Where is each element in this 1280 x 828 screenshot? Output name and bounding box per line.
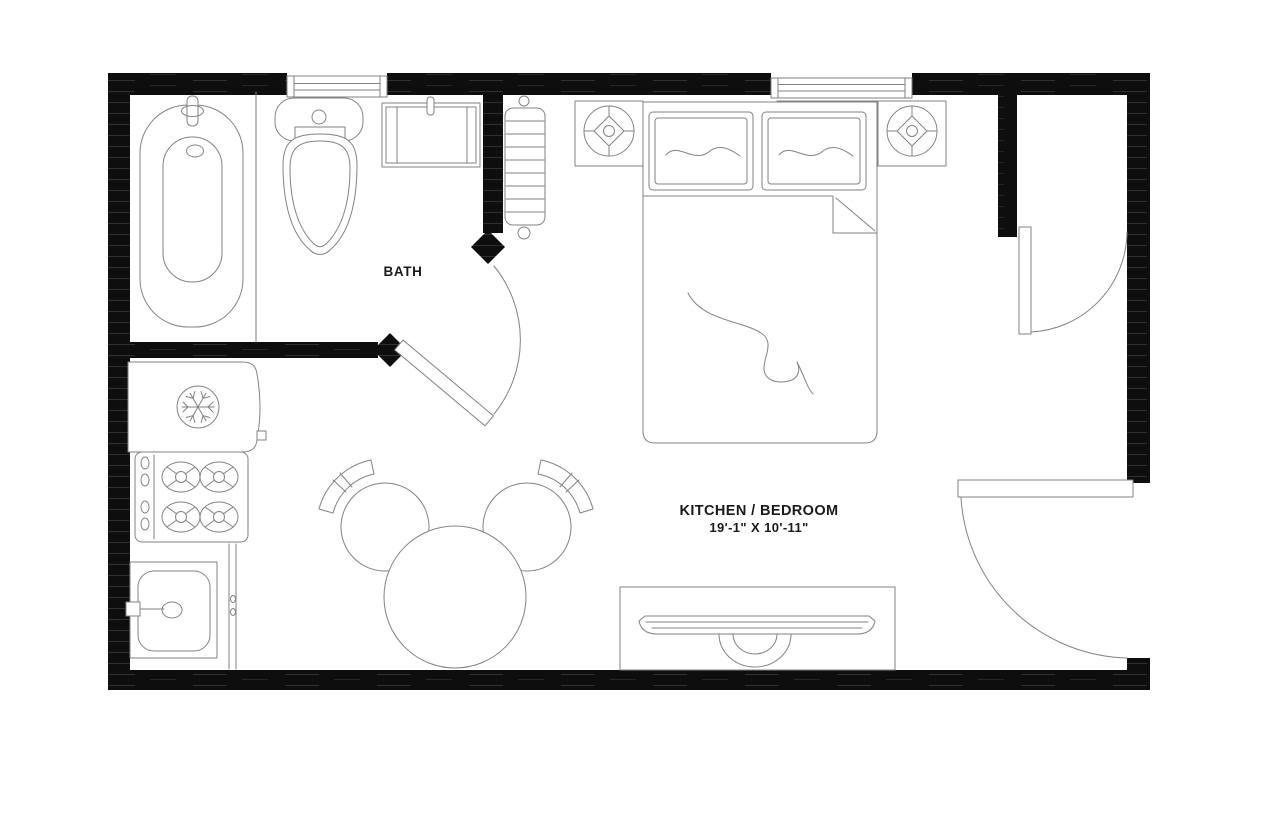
exterior-wall-left — [108, 73, 130, 690]
closet-door-leaf — [1019, 227, 1031, 334]
floor-plan-svg: BATH — [0, 0, 1280, 828]
bath-room-label: BATH — [384, 264, 423, 279]
toilet-bowl — [283, 134, 357, 255]
closet-partition-wall — [998, 95, 1017, 237]
exterior-wall-right-upper — [1127, 73, 1150, 483]
exterior-wall-right-lower — [1127, 658, 1150, 690]
tub-faucet-icon — [187, 96, 198, 126]
bath-door-leaf — [395, 340, 494, 426]
entry-door-leaf — [958, 480, 1133, 497]
bath-door-arc — [494, 266, 520, 414]
bedroom-window — [771, 78, 912, 101]
media-console — [620, 587, 895, 670]
sink-faucet-icon — [126, 602, 140, 616]
floor-plan-page: BATH — [0, 0, 1280, 828]
stove — [135, 452, 248, 542]
closet-door — [1019, 227, 1127, 334]
exterior-wall-top-middle — [387, 73, 771, 95]
vanity-faucet-icon — [427, 97, 434, 115]
closet-door-arc — [1031, 232, 1127, 332]
entry-door-arc — [961, 498, 1127, 658]
speaker-icon — [887, 106, 937, 156]
exterior-wall-top-left — [108, 73, 287, 95]
exterior-wall-bottom — [108, 670, 1150, 690]
fridge-handle — [257, 431, 266, 440]
toilet — [275, 98, 363, 255]
radiator — [505, 96, 545, 239]
tub-drain-icon — [187, 145, 204, 157]
entry-door — [958, 480, 1133, 658]
main-room-dimensions: 19'-1" X 10'-11" — [709, 520, 808, 535]
bath-door — [395, 266, 521, 426]
nightstand-right — [878, 101, 946, 166]
bathtub — [140, 96, 243, 327]
main-room-label: KITCHEN / BEDROOM — [679, 503, 838, 519]
pillow-right — [762, 112, 866, 190]
refrigerator — [128, 362, 266, 452]
kitchen-sink — [126, 562, 217, 658]
nightstand-left — [575, 101, 643, 166]
pillow-left — [649, 112, 753, 190]
dining-table — [384, 526, 526, 668]
bath-window — [287, 76, 387, 97]
vanity-sink — [382, 97, 480, 167]
speaker-icon — [584, 106, 634, 156]
counter-edge — [229, 544, 236, 669]
exterior-wall-top-right — [912, 73, 1150, 95]
bed — [643, 102, 877, 443]
